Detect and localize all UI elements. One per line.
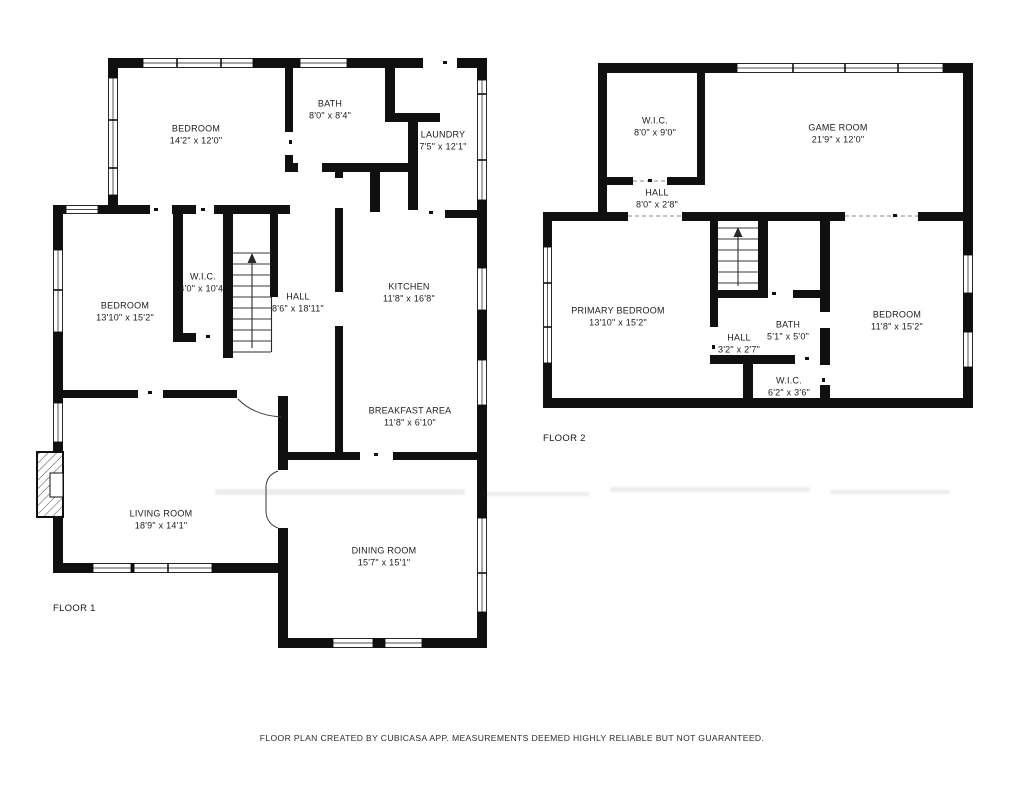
fireplace xyxy=(37,452,63,517)
floor1-windows xyxy=(54,59,487,648)
scan-artifact xyxy=(610,487,810,492)
floor1-label: FLOOR 1 xyxy=(53,603,96,614)
floor1-walls xyxy=(53,58,487,648)
floorplan-drawing xyxy=(0,0,1024,791)
scan-artifact xyxy=(830,490,950,494)
floor2-walls xyxy=(543,63,973,408)
floor2-label: FLOOR 2 xyxy=(543,433,586,444)
scan-artifact xyxy=(480,492,590,496)
floor2-stairs xyxy=(718,227,758,286)
scan-artifact xyxy=(215,489,465,495)
floor1-stairs xyxy=(233,253,272,352)
footer-disclaimer: FLOOR PLAN CREATED BY CUBICASA APP. MEAS… xyxy=(260,733,764,743)
floorplan-page: BEDROOM 14'2" x 12'0" BATH 8'0" x 8'4" L… xyxy=(0,0,1024,791)
